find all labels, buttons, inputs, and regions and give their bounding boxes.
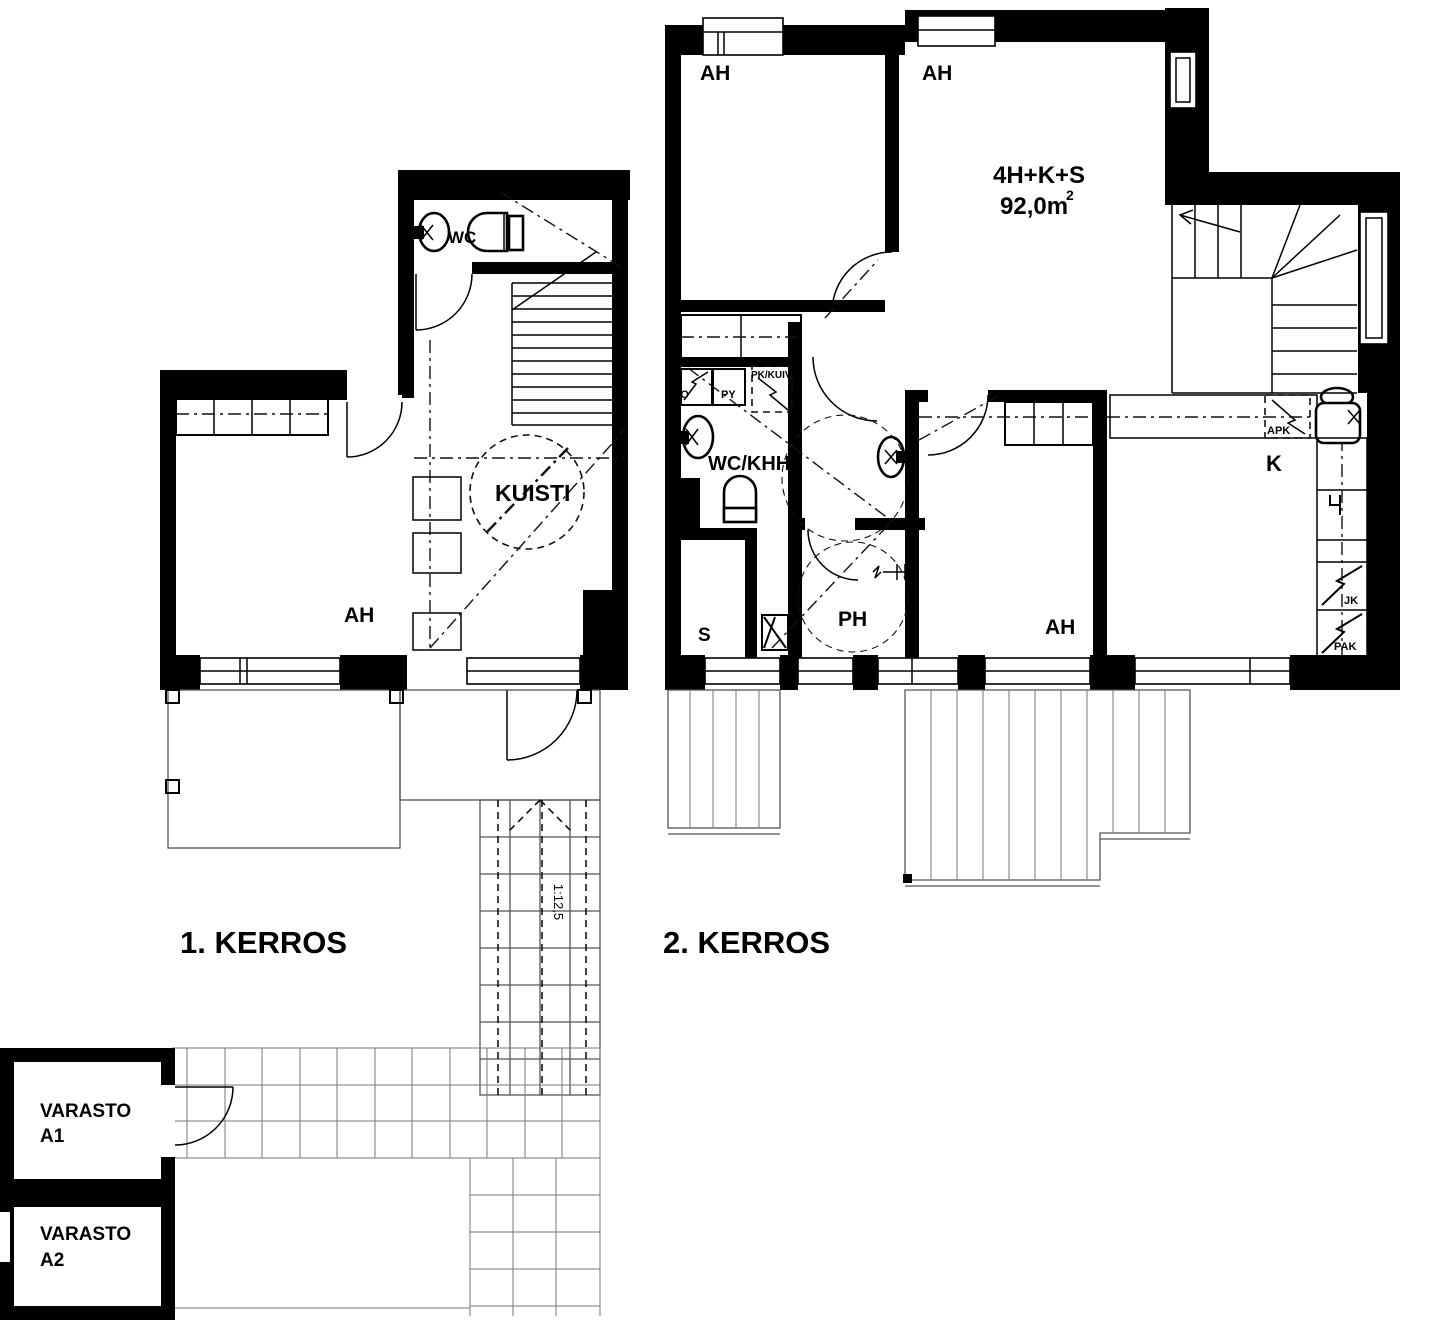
apartment-area-label: 92,0m — [1000, 193, 1068, 220]
room-label-kitchen: K — [1266, 451, 1282, 476]
appliance-label-pak: PAK — [1334, 641, 1356, 653]
apartment-type-label: 4H+K+S — [993, 162, 1085, 189]
room-label-sauna: S — [698, 625, 711, 646]
storage-a2-number: A2 — [40, 1250, 64, 1271]
appliance-label-jk: JK — [1344, 595, 1358, 607]
floor2-hall-door-arc — [813, 357, 877, 421]
floor2-ph-door-arc — [808, 530, 858, 580]
floor2-ah3-wardrobe — [1005, 402, 1093, 445]
floor2-plan: LTO PY PK/KUIV — [663, 8, 1400, 960]
room-label-ah-bottom: AH — [1045, 616, 1075, 639]
room-label-ah-top-right: AH — [922, 62, 952, 85]
floor1-entry-door-arc — [416, 274, 472, 330]
floor1-stairs — [512, 252, 612, 425]
floor1-ah-door-arc — [347, 402, 402, 457]
apartment-area-superscript: 2 — [1066, 187, 1074, 203]
floor2-window-top-right — [918, 16, 995, 46]
room-label-wc: WC — [448, 228, 476, 247]
floor1-dashdot-lines — [414, 192, 626, 650]
floor2-title: 2. KERROS — [663, 925, 830, 960]
storage-a2-label: VARASTO — [40, 1224, 131, 1245]
floor2-hall-sink-icon — [878, 437, 905, 477]
room-label-f1-ah: AH — [344, 604, 374, 627]
floor1-window-2 — [467, 658, 580, 684]
access-ramp: 1:12,5 — [480, 800, 600, 1095]
storage-a1-label: VARASTO — [40, 1101, 131, 1122]
floor1-hall-cabinets — [413, 477, 461, 650]
kitchen-sink-icon — [1316, 388, 1360, 443]
ramp-slope-label: 1:12,5 — [551, 884, 566, 920]
floor1-window-1 — [200, 658, 340, 684]
floor1-terrace — [166, 690, 600, 848]
storage-a1-door-arc — [175, 1087, 233, 1145]
pavement-grid — [172, 1048, 600, 1316]
floor1-terrace-door-arc — [507, 690, 577, 760]
storage-a1-number: A1 — [40, 1126, 65, 1147]
storage-units: VARASTO A1 VARASTO A2 — [0, 1048, 233, 1320]
turning-circle-2 — [798, 542, 908, 652]
floor-plan-page: WC — [0, 0, 1440, 1320]
floor1-plan: WC — [160, 170, 630, 1316]
floor2-balcony-right — [903, 690, 1190, 886]
appliance-label-apk: APK — [1267, 425, 1290, 437]
room-label-ph: PH — [838, 608, 867, 631]
floor2-stairs — [1172, 205, 1357, 393]
room-label-wc-khh: WC/KHH — [708, 453, 790, 475]
floor2-toilet-icon — [724, 476, 756, 522]
floor2-window-corner — [1170, 52, 1196, 108]
closet-label-lto: LTO — [668, 389, 689, 401]
floor2-balcony-left — [668, 690, 780, 834]
floor2-hall-closets — [681, 315, 801, 359]
floor2-wc-sink-icon — [679, 416, 713, 458]
floor2-ah3-door-arc — [928, 395, 988, 455]
room-label-kuisti: KUISTI — [495, 480, 570, 506]
floor-plan-drawing: WC — [0, 0, 1440, 1320]
floor2-utility-closets: LTO PY PK/KUIV — [668, 366, 792, 412]
floor1-title: 1. KERROS — [180, 925, 347, 960]
kitchen-counter: APK — [1110, 388, 1360, 443]
floor1-wc-sink-icon — [414, 213, 449, 251]
room-label-ah-top-left: AH — [700, 62, 730, 85]
floor2-window-top-left — [703, 18, 783, 55]
shower-mixer-icon — [873, 564, 905, 580]
closet-label-pk-kuiv: PK/KUIV — [751, 370, 792, 381]
floor2-window-stair — [1360, 212, 1388, 344]
